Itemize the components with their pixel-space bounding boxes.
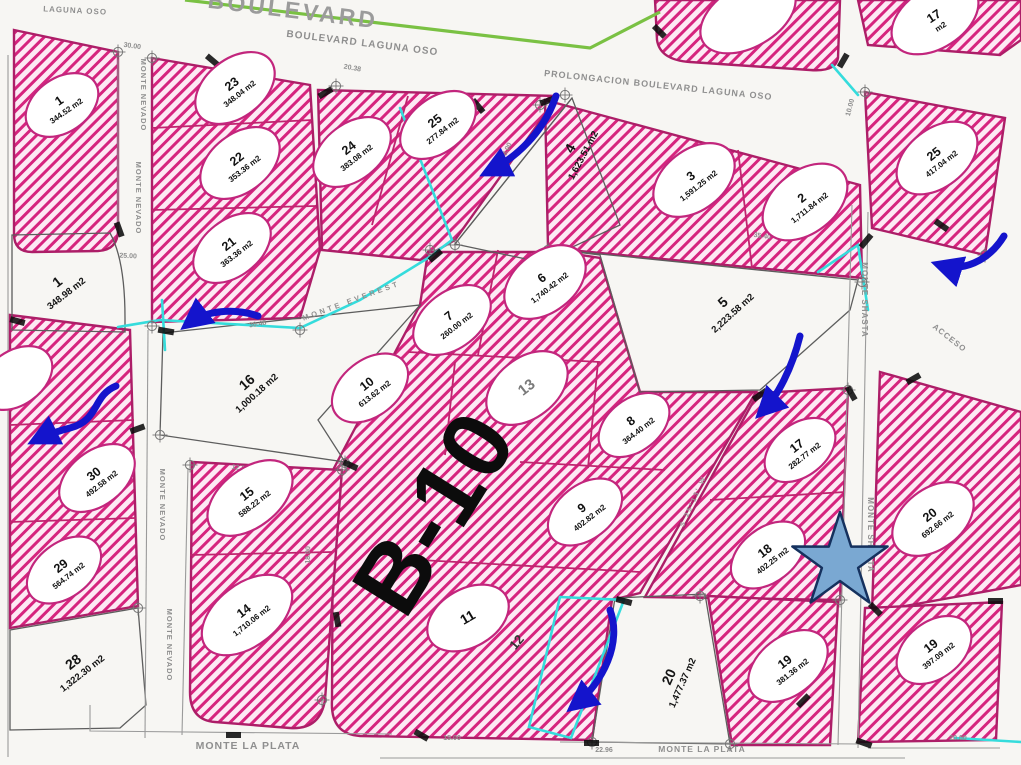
lot-label-20-bottom: 201,477.37 m2 [651, 649, 699, 710]
svg-text:18.00: 18.00 [305, 546, 313, 564]
label-acceso: ACCESO [931, 322, 968, 354]
svg-text:15.00: 15.00 [443, 735, 461, 742]
svg-text:22.96: 22.96 [595, 747, 613, 754]
label-monte-nevado-3: MONTE NEVADO [158, 469, 167, 542]
svg-text:30.48: 30.48 [248, 320, 267, 330]
label-monte-nevado-1: MONTE NEVADO [139, 59, 148, 132]
label-laguna-corner: LAGUNA OSO [43, 4, 107, 16]
label-boulevard-laguna: BOULEVARD LAGUNA OSO [286, 29, 439, 59]
svg-text:5: 5 [714, 293, 731, 310]
label-prolongacion: PROLONGACION BOULEVARD LAGUNA OSO [544, 68, 773, 102]
label-monte-nevado-2: MONTE NEVADO [134, 162, 143, 235]
svg-text:20.00: 20.00 [949, 735, 967, 742]
parcel-lot-1-top [14, 30, 118, 252]
lot-label-16: 161,000.18 m2 [221, 358, 280, 415]
label-monte-everest: MONTE EVEREST [301, 279, 401, 323]
label-monte-shasta-1: MONTE SHASTA [860, 262, 869, 337]
label-boulevard-large: BOULEVARD [207, 0, 380, 33]
svg-text:25.00: 25.00 [119, 253, 137, 261]
lot-label-1-bottom: 1348.98 m2 [34, 261, 88, 312]
svg-text:20.38: 20.38 [343, 64, 362, 74]
parcel-lot-28 [10, 608, 146, 730]
plat-map: LAGUNA OSO BOULEVARD BOULEVARD LAGUNA OS… [0, 0, 1021, 765]
lot-label-5: 52,223.58 m2 [697, 278, 756, 335]
label-monte-la-plata-2: MONTE LA PLATA [658, 744, 746, 754]
svg-text:10.00: 10.00 [845, 98, 856, 117]
label-monte-la-plata-1: MONTE LA PLATA [196, 740, 301, 752]
svg-text:30.00: 30.00 [123, 42, 141, 51]
lot-label-28: 281,322.30 m2 [47, 639, 107, 695]
label-monte-nevado-4: MONTE NEVADO [165, 609, 174, 682]
svg-text:1: 1 [49, 273, 65, 291]
